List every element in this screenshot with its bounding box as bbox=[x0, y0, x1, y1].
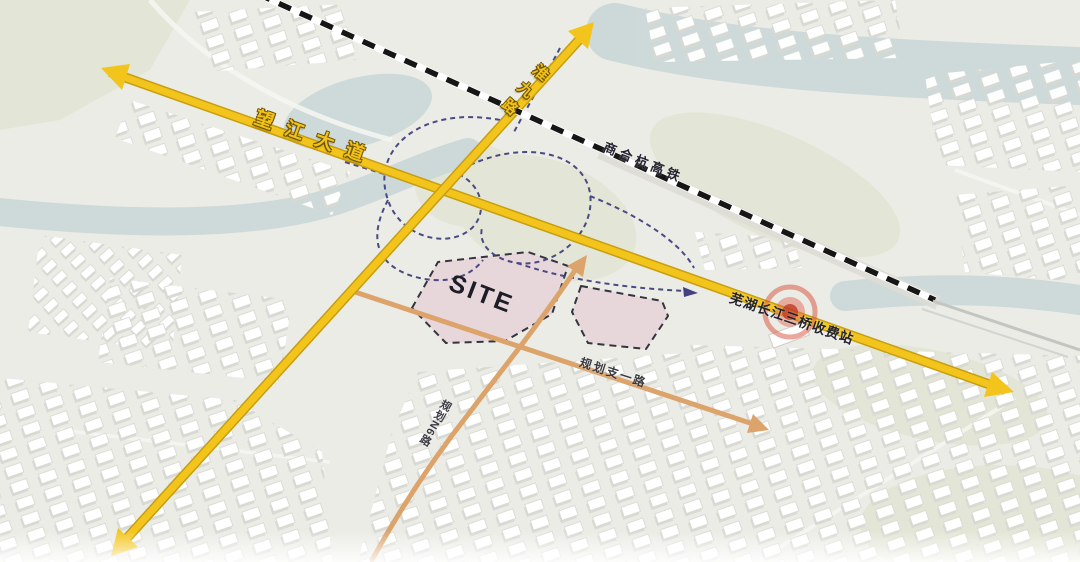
building-cluster bbox=[925, 60, 1080, 172]
building-cluster bbox=[645, 0, 905, 62]
building-cluster bbox=[955, 185, 1080, 282]
building-cluster bbox=[190, 4, 356, 72]
bottom-fade bbox=[0, 530, 1080, 562]
building-cluster bbox=[690, 345, 1080, 562]
map-canvas: 望江大道 淮九路 商合杭高铁 芜湖长江三桥收费站 规划支一路 规划N6路 SIT… bbox=[0, 0, 1080, 562]
